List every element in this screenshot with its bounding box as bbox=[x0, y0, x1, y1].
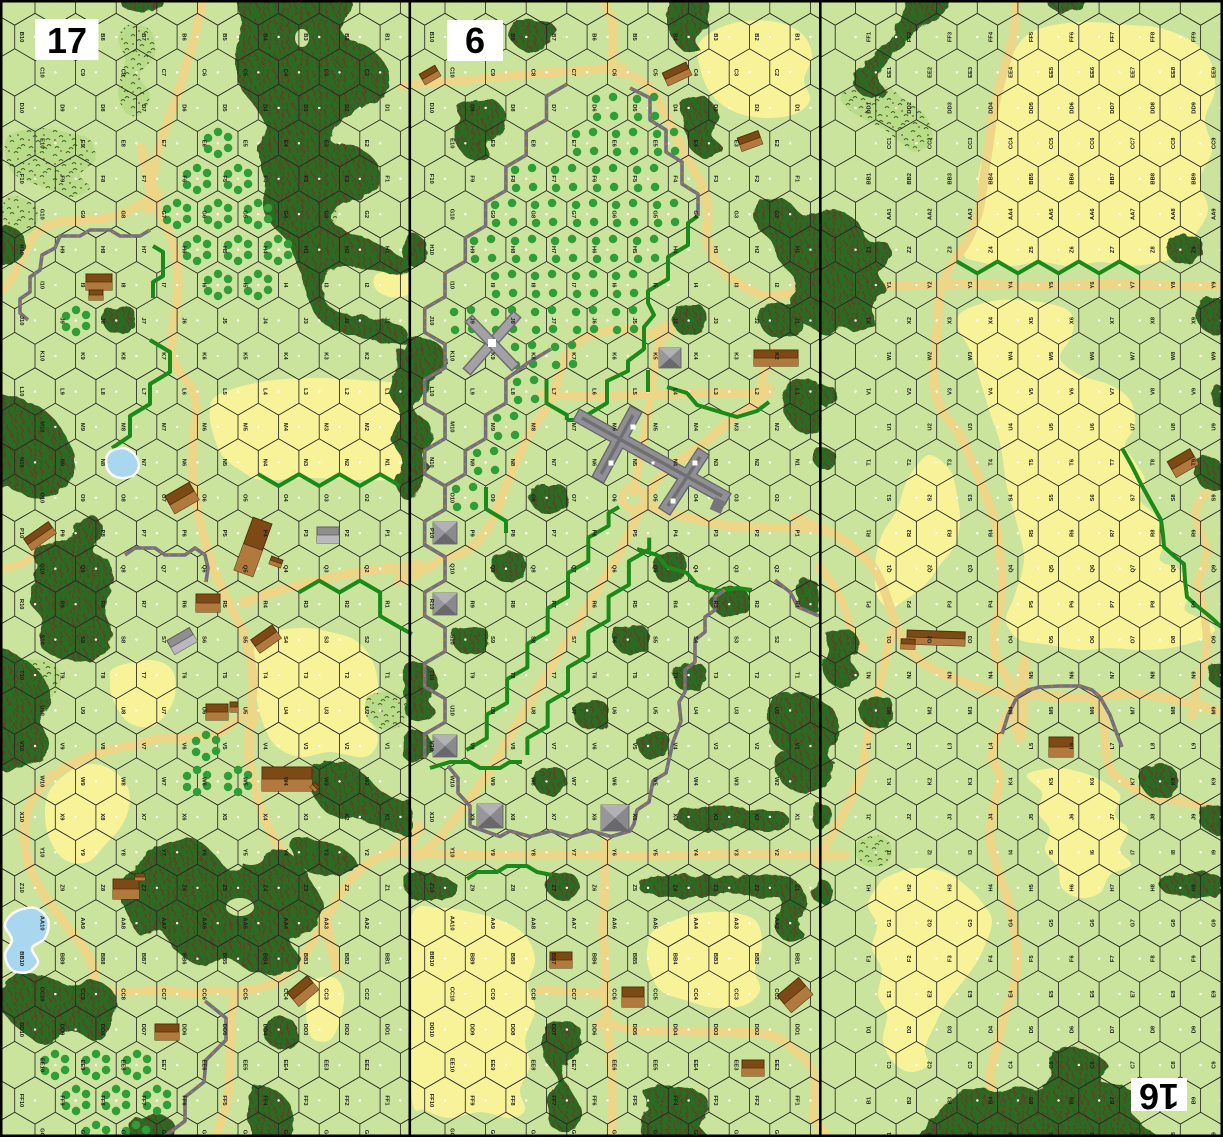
svg-text:AA8: AA8 bbox=[530, 917, 536, 929]
svg-text:BB7: BB7 bbox=[550, 953, 556, 965]
svg-text:BB2: BB2 bbox=[753, 953, 759, 965]
svg-text:L5: L5 bbox=[221, 388, 227, 396]
svg-text:N6: N6 bbox=[180, 459, 186, 467]
svg-text:FF3: FF3 bbox=[712, 1095, 718, 1106]
svg-text:O5: O5 bbox=[1049, 635, 1055, 644]
svg-text:W6: W6 bbox=[201, 777, 207, 786]
svg-text:X1: X1 bbox=[867, 316, 873, 324]
svg-text:U4: U4 bbox=[1009, 422, 1015, 430]
svg-text:FF7: FF7 bbox=[140, 1095, 146, 1105]
svg-text:EE10: EE10 bbox=[448, 1058, 454, 1072]
svg-text:O4: O4 bbox=[692, 494, 698, 503]
svg-text:J1: J1 bbox=[793, 317, 799, 324]
svg-text:M6: M6 bbox=[201, 423, 207, 432]
svg-text:D4: D4 bbox=[672, 104, 678, 112]
svg-text:U4: U4 bbox=[282, 707, 288, 715]
svg-text:S9: S9 bbox=[1212, 493, 1218, 501]
svg-text:E9: E9 bbox=[79, 140, 85, 148]
svg-text:R10: R10 bbox=[18, 599, 24, 610]
svg-text:B10: B10 bbox=[18, 32, 24, 43]
svg-text:G5: G5 bbox=[1049, 919, 1055, 928]
svg-text:N7: N7 bbox=[1110, 671, 1116, 678]
svg-text:N10: N10 bbox=[18, 457, 24, 468]
svg-text:O2: O2 bbox=[927, 636, 933, 644]
svg-text:DD8: DD8 bbox=[99, 1024, 105, 1036]
svg-text:EE9: EE9 bbox=[489, 1060, 495, 1072]
svg-text:Y8: Y8 bbox=[530, 849, 536, 857]
svg-text:O7: O7 bbox=[570, 494, 576, 502]
svg-text:K7: K7 bbox=[1130, 778, 1136, 785]
svg-text:Q3: Q3 bbox=[323, 565, 329, 574]
svg-text:J1: J1 bbox=[867, 813, 873, 820]
svg-text:BB9: BB9 bbox=[59, 953, 65, 965]
svg-text:H5: H5 bbox=[221, 246, 227, 254]
svg-text:J5: J5 bbox=[1029, 813, 1035, 820]
svg-text:M1: M1 bbox=[887, 706, 893, 715]
svg-text:Z4: Z4 bbox=[672, 884, 678, 892]
svg-text:AA4: AA4 bbox=[1009, 208, 1015, 220]
svg-text:V5: V5 bbox=[1029, 387, 1035, 395]
svg-text:Y3: Y3 bbox=[968, 281, 974, 289]
svg-text:O7: O7 bbox=[1130, 636, 1136, 644]
svg-text:W3: W3 bbox=[968, 351, 974, 360]
svg-text:O3: O3 bbox=[323, 494, 329, 503]
svg-text:C3: C3 bbox=[968, 1061, 974, 1069]
svg-text:R5: R5 bbox=[221, 600, 227, 608]
svg-text:X9: X9 bbox=[469, 813, 475, 821]
svg-text:O10: O10 bbox=[448, 492, 454, 503]
svg-text:T5: T5 bbox=[1029, 458, 1035, 466]
svg-text:M8: M8 bbox=[530, 423, 536, 432]
svg-text:Z8: Z8 bbox=[99, 884, 105, 892]
svg-text:T3: T3 bbox=[302, 672, 308, 680]
svg-text:AA9: AA9 bbox=[1212, 208, 1218, 220]
svg-text:E6: E6 bbox=[1090, 990, 1096, 998]
svg-text:M3: M3 bbox=[323, 423, 329, 432]
svg-text:N9: N9 bbox=[1191, 671, 1197, 679]
svg-text:I7: I7 bbox=[1130, 850, 1136, 855]
svg-text:H1: H1 bbox=[793, 246, 799, 254]
svg-text:E5: E5 bbox=[1049, 990, 1055, 998]
svg-text:T6: T6 bbox=[180, 672, 186, 680]
svg-text:EE6: EE6 bbox=[1090, 66, 1096, 78]
svg-text:E1: E1 bbox=[887, 990, 893, 998]
svg-text:E4: E4 bbox=[282, 140, 288, 148]
svg-text:N4: N4 bbox=[672, 459, 678, 467]
svg-text:CC4: CC4 bbox=[1009, 137, 1015, 149]
svg-text:G5: G5 bbox=[241, 210, 247, 219]
svg-text:CC8: CC8 bbox=[1171, 137, 1177, 149]
svg-text:D6: D6 bbox=[180, 104, 186, 112]
svg-text:J8: J8 bbox=[99, 317, 105, 324]
svg-text:S7: S7 bbox=[160, 636, 166, 643]
svg-text:F6: F6 bbox=[590, 175, 596, 183]
svg-text:P7: P7 bbox=[1110, 601, 1116, 608]
svg-text:N6: N6 bbox=[590, 459, 596, 467]
svg-text:Z2: Z2 bbox=[343, 884, 349, 891]
svg-text:I9: I9 bbox=[1212, 849, 1218, 855]
svg-text:S5: S5 bbox=[651, 636, 657, 644]
svg-text:DD5: DD5 bbox=[221, 1024, 227, 1036]
svg-text:E4: E4 bbox=[692, 140, 698, 148]
svg-text:DD2: DD2 bbox=[907, 102, 913, 114]
svg-text:L5: L5 bbox=[631, 388, 637, 396]
svg-text:K4: K4 bbox=[692, 352, 698, 360]
svg-text:D5: D5 bbox=[1029, 1025, 1035, 1033]
svg-text:N8: N8 bbox=[99, 459, 105, 467]
svg-text:FF7: FF7 bbox=[550, 1095, 556, 1105]
svg-text:T9: T9 bbox=[469, 672, 475, 680]
svg-text:Z5: Z5 bbox=[1029, 246, 1035, 254]
svg-text:C4: C4 bbox=[1009, 1061, 1015, 1069]
svg-text:L7: L7 bbox=[550, 388, 556, 395]
svg-text:X10: X10 bbox=[18, 812, 24, 822]
svg-text:B4: B4 bbox=[988, 1096, 994, 1104]
svg-text:Z7: Z7 bbox=[550, 884, 556, 891]
svg-text:BB4: BB4 bbox=[988, 172, 994, 184]
svg-text:U2: U2 bbox=[773, 707, 779, 714]
svg-text:Y10: Y10 bbox=[448, 847, 454, 857]
svg-text:I9: I9 bbox=[79, 283, 85, 289]
svg-text:G6: G6 bbox=[611, 210, 617, 219]
svg-text:B5: B5 bbox=[221, 33, 227, 41]
svg-text:O6: O6 bbox=[201, 494, 207, 503]
svg-text:Q5: Q5 bbox=[1049, 564, 1055, 573]
svg-text:V8: V8 bbox=[509, 742, 515, 750]
svg-text:G9: G9 bbox=[79, 210, 85, 219]
svg-text:DD4: DD4 bbox=[672, 1024, 678, 1036]
svg-text:K8: K8 bbox=[120, 352, 126, 360]
svg-text:K6: K6 bbox=[201, 352, 207, 360]
svg-text:O8: O8 bbox=[120, 494, 126, 503]
svg-text:W2: W2 bbox=[927, 352, 933, 361]
svg-text:F6: F6 bbox=[1070, 955, 1076, 963]
svg-text:S6: S6 bbox=[611, 636, 617, 644]
svg-text:H1: H1 bbox=[867, 883, 873, 891]
svg-text:Z4: Z4 bbox=[262, 884, 268, 892]
svg-text:R2: R2 bbox=[343, 600, 349, 607]
svg-text:V1: V1 bbox=[867, 387, 873, 395]
svg-text:Q6: Q6 bbox=[201, 565, 207, 574]
svg-text:Y10: Y10 bbox=[38, 847, 44, 857]
svg-text:J7: J7 bbox=[1110, 814, 1116, 820]
svg-text:T4: T4 bbox=[988, 458, 994, 466]
svg-text:O10: O10 bbox=[38, 492, 44, 503]
svg-text:FF6: FF6 bbox=[590, 1095, 596, 1106]
svg-text:N8: N8 bbox=[1151, 671, 1157, 679]
svg-text:Q7: Q7 bbox=[570, 565, 576, 573]
svg-text:W3: W3 bbox=[733, 777, 739, 786]
svg-text:DD5: DD5 bbox=[631, 1024, 637, 1036]
svg-text:C8: C8 bbox=[530, 69, 536, 77]
svg-text:Z6: Z6 bbox=[180, 884, 186, 892]
svg-text:M4: M4 bbox=[692, 423, 698, 432]
svg-text:O9: O9 bbox=[1212, 635, 1218, 644]
svg-text:Z2: Z2 bbox=[753, 884, 759, 891]
svg-text:S9: S9 bbox=[489, 636, 495, 644]
svg-text:J7: J7 bbox=[140, 317, 146, 323]
svg-text:E8: E8 bbox=[1171, 990, 1177, 998]
svg-text:H8: H8 bbox=[99, 246, 105, 254]
svg-text:I7: I7 bbox=[570, 283, 576, 288]
svg-text:P7: P7 bbox=[550, 530, 556, 537]
svg-text:S6: S6 bbox=[1090, 493, 1096, 501]
svg-text:S10: S10 bbox=[448, 634, 454, 644]
svg-text:C7: C7 bbox=[570, 69, 576, 76]
svg-text:J3: J3 bbox=[712, 317, 718, 324]
svg-text:G3: G3 bbox=[323, 210, 329, 219]
svg-text:I4: I4 bbox=[282, 283, 288, 289]
svg-text:L5: L5 bbox=[1029, 742, 1035, 750]
svg-text:V4: V4 bbox=[262, 742, 268, 750]
svg-text:BB10: BB10 bbox=[428, 951, 434, 966]
svg-text:S4: S4 bbox=[1009, 493, 1015, 501]
svg-text:EE5: EE5 bbox=[241, 1060, 247, 1072]
svg-text:B3: B3 bbox=[712, 33, 718, 41]
svg-text:W2: W2 bbox=[363, 777, 369, 786]
svg-text:J7: J7 bbox=[550, 317, 556, 323]
svg-text:G2: G2 bbox=[363, 210, 369, 218]
svg-text:U9: U9 bbox=[489, 707, 495, 715]
svg-text:X1: X1 bbox=[793, 813, 799, 821]
svg-text:F3: F3 bbox=[712, 175, 718, 183]
svg-text:D7: D7 bbox=[140, 104, 146, 111]
svg-text:R3: R3 bbox=[302, 600, 308, 608]
svg-text:I8: I8 bbox=[1171, 849, 1177, 855]
svg-text:J10: J10 bbox=[18, 316, 24, 326]
svg-text:EE9: EE9 bbox=[79, 1060, 85, 1072]
svg-text:X8: X8 bbox=[99, 813, 105, 821]
svg-text:V9: V9 bbox=[469, 742, 475, 750]
svg-text:W6: W6 bbox=[1090, 351, 1096, 360]
svg-text:D3: D3 bbox=[302, 104, 308, 112]
svg-text:D2: D2 bbox=[753, 104, 759, 111]
svg-text:DD8: DD8 bbox=[1151, 101, 1157, 113]
svg-text:J3: J3 bbox=[302, 317, 308, 324]
svg-text:AA3: AA3 bbox=[733, 917, 739, 929]
svg-text:AA10: AA10 bbox=[448, 916, 454, 931]
svg-text:H8: H8 bbox=[1151, 883, 1157, 891]
svg-text:N4: N4 bbox=[262, 459, 268, 467]
svg-text:DD7: DD7 bbox=[550, 1024, 556, 1036]
svg-text:O7: O7 bbox=[160, 494, 166, 502]
svg-text:D3: D3 bbox=[948, 1025, 954, 1033]
svg-text:Z7: Z7 bbox=[1110, 246, 1116, 253]
svg-text:B1: B1 bbox=[867, 1096, 873, 1104]
svg-text:C4: C4 bbox=[282, 69, 288, 77]
svg-text:O4: O4 bbox=[1009, 635, 1015, 644]
svg-text:O4: O4 bbox=[282, 494, 288, 503]
svg-text:FF2: FF2 bbox=[343, 1095, 349, 1105]
svg-text:L9: L9 bbox=[59, 388, 65, 396]
svg-text:R6: R6 bbox=[1070, 529, 1076, 537]
svg-text:Q10: Q10 bbox=[38, 563, 44, 574]
svg-text:Q5: Q5 bbox=[241, 565, 247, 574]
svg-text:Q3: Q3 bbox=[968, 564, 974, 573]
svg-text:FF2: FF2 bbox=[907, 32, 913, 42]
svg-text:L3: L3 bbox=[712, 388, 718, 396]
svg-text:EE3: EE3 bbox=[733, 1060, 739, 1072]
svg-text:F1: F1 bbox=[793, 175, 799, 183]
svg-text:R9: R9 bbox=[469, 600, 475, 608]
svg-text:H4: H4 bbox=[262, 246, 268, 254]
svg-text:J8: J8 bbox=[509, 317, 515, 324]
svg-text:Q8: Q8 bbox=[1171, 564, 1177, 573]
svg-text:I2: I2 bbox=[363, 283, 369, 288]
svg-text:BB5: BB5 bbox=[631, 953, 637, 965]
svg-text:BB4: BB4 bbox=[672, 953, 678, 965]
svg-text:J8: J8 bbox=[1151, 813, 1157, 820]
svg-text:X7: X7 bbox=[1110, 317, 1116, 324]
svg-text:K5: K5 bbox=[1049, 777, 1055, 785]
svg-text:O3: O3 bbox=[968, 635, 974, 644]
svg-text:W5: W5 bbox=[241, 777, 247, 786]
svg-text:G7: G7 bbox=[1130, 919, 1136, 927]
svg-text:BB3: BB3 bbox=[302, 953, 308, 965]
svg-text:P7: P7 bbox=[140, 530, 146, 537]
svg-text:K9: K9 bbox=[79, 352, 85, 360]
svg-text:E4: E4 bbox=[1009, 990, 1015, 998]
svg-text:C5: C5 bbox=[241, 69, 247, 77]
svg-text:D9: D9 bbox=[59, 104, 65, 112]
svg-text:C5: C5 bbox=[1049, 1061, 1055, 1069]
svg-text:I5: I5 bbox=[1049, 849, 1055, 855]
svg-text:U1: U1 bbox=[887, 422, 893, 430]
svg-text:FF8: FF8 bbox=[99, 1095, 105, 1106]
svg-text:W10: W10 bbox=[448, 775, 454, 787]
svg-text:D9: D9 bbox=[469, 104, 475, 112]
svg-text:K3: K3 bbox=[323, 352, 329, 360]
svg-text:I9: I9 bbox=[489, 283, 495, 289]
svg-text:AA5: AA5 bbox=[241, 917, 247, 929]
svg-text:BB1: BB1 bbox=[383, 953, 389, 965]
svg-text:Y7: Y7 bbox=[570, 849, 576, 856]
svg-text:BB6: BB6 bbox=[180, 953, 186, 965]
svg-text:FF2: FF2 bbox=[753, 1095, 759, 1105]
svg-text:S8: S8 bbox=[1171, 493, 1177, 501]
svg-text:U10: U10 bbox=[448, 705, 454, 716]
svg-text:U3: U3 bbox=[733, 707, 739, 715]
svg-text:Q7: Q7 bbox=[1130, 565, 1136, 573]
svg-text:J5: J5 bbox=[631, 317, 637, 324]
svg-text:Y9: Y9 bbox=[79, 849, 85, 857]
svg-text:S1: S1 bbox=[887, 493, 893, 501]
svg-text:L4: L4 bbox=[262, 388, 268, 396]
svg-text:L4: L4 bbox=[672, 388, 678, 396]
svg-text:X7: X7 bbox=[140, 813, 146, 820]
svg-text:Y4: Y4 bbox=[1009, 281, 1015, 289]
svg-text:F4: F4 bbox=[262, 175, 268, 183]
svg-text:T2: T2 bbox=[753, 672, 759, 679]
svg-text:B3: B3 bbox=[948, 1096, 954, 1104]
svg-text:P1: P1 bbox=[383, 530, 389, 538]
svg-text:DD4: DD4 bbox=[988, 101, 994, 113]
svg-text:CC1: CC1 bbox=[887, 137, 893, 149]
svg-text:B7: B7 bbox=[550, 33, 556, 40]
svg-text:AA5: AA5 bbox=[1049, 208, 1055, 220]
svg-text:F9: F9 bbox=[59, 175, 65, 183]
svg-text:L2: L2 bbox=[753, 388, 759, 395]
svg-text:B5: B5 bbox=[1029, 1096, 1035, 1104]
svg-text:P2: P2 bbox=[907, 601, 913, 608]
svg-text:T7: T7 bbox=[550, 672, 556, 679]
svg-text:CC7: CC7 bbox=[1130, 137, 1136, 149]
svg-text:O2: O2 bbox=[773, 494, 779, 502]
svg-text:AA2: AA2 bbox=[773, 917, 779, 929]
svg-text:C4: C4 bbox=[692, 69, 698, 77]
svg-text:C10: C10 bbox=[38, 67, 44, 78]
svg-text:P1: P1 bbox=[867, 600, 873, 608]
svg-text:V7: V7 bbox=[1110, 388, 1116, 395]
svg-text:R3: R3 bbox=[712, 600, 718, 608]
svg-text:E6: E6 bbox=[201, 140, 207, 148]
svg-text:FF4: FF4 bbox=[672, 1095, 678, 1106]
svg-text:K7: K7 bbox=[570, 352, 576, 359]
svg-text:F9: F9 bbox=[469, 175, 475, 183]
svg-text:X5: X5 bbox=[221, 813, 227, 821]
svg-text:H3: H3 bbox=[948, 883, 954, 891]
svg-text:J2: J2 bbox=[907, 814, 913, 820]
svg-text:K3: K3 bbox=[733, 352, 739, 360]
svg-text:S4: S4 bbox=[282, 636, 288, 644]
svg-text:E9: E9 bbox=[1212, 990, 1218, 998]
svg-text:P9: P9 bbox=[469, 530, 475, 538]
svg-text:B7: B7 bbox=[140, 33, 146, 40]
svg-text:G8: G8 bbox=[1171, 919, 1177, 928]
svg-text:O9: O9 bbox=[489, 494, 495, 503]
svg-text:V3: V3 bbox=[948, 387, 954, 395]
svg-text:P9: P9 bbox=[59, 530, 65, 538]
svg-text:AA6: AA6 bbox=[201, 917, 207, 929]
svg-text:CC9: CC9 bbox=[79, 988, 85, 1000]
svg-text:Z10: Z10 bbox=[428, 883, 434, 893]
svg-text:P10: P10 bbox=[428, 528, 434, 538]
svg-text:T8: T8 bbox=[99, 672, 105, 680]
svg-text:L7: L7 bbox=[1110, 743, 1116, 750]
svg-text:R7: R7 bbox=[140, 600, 146, 607]
svg-text:DD10: DD10 bbox=[18, 1022, 24, 1037]
svg-text:N2: N2 bbox=[343, 459, 349, 466]
svg-text:H6: H6 bbox=[180, 246, 186, 254]
svg-text:V8: V8 bbox=[99, 742, 105, 750]
svg-text:E3: E3 bbox=[968, 990, 974, 998]
svg-text:N8: N8 bbox=[509, 459, 515, 467]
svg-text:L8: L8 bbox=[99, 388, 105, 396]
svg-text:Y6: Y6 bbox=[611, 849, 617, 857]
svg-text:R2: R2 bbox=[907, 529, 913, 536]
svg-text:N9: N9 bbox=[469, 459, 475, 467]
svg-text:AA2: AA2 bbox=[363, 917, 369, 929]
svg-text:H6: H6 bbox=[1070, 883, 1076, 891]
svg-text:X2: X2 bbox=[907, 317, 913, 324]
svg-text:L4: L4 bbox=[988, 742, 994, 750]
svg-text:V2: V2 bbox=[343, 742, 349, 749]
svg-text:J10: J10 bbox=[428, 316, 434, 326]
svg-text:F5: F5 bbox=[631, 175, 637, 183]
svg-text:T6: T6 bbox=[590, 672, 596, 680]
svg-text:T5: T5 bbox=[631, 672, 637, 680]
svg-text:Q9: Q9 bbox=[79, 565, 85, 574]
svg-text:I2: I2 bbox=[773, 283, 779, 288]
svg-text:K1: K1 bbox=[887, 777, 893, 785]
svg-text:BB1: BB1 bbox=[867, 172, 873, 184]
svg-text:DD7: DD7 bbox=[1110, 102, 1116, 114]
svg-text:K2: K2 bbox=[773, 352, 779, 359]
svg-text:H8: H8 bbox=[509, 246, 515, 254]
svg-text:I8: I8 bbox=[120, 283, 126, 289]
svg-text:O6: O6 bbox=[1090, 635, 1096, 644]
svg-text:X7: X7 bbox=[550, 813, 556, 820]
